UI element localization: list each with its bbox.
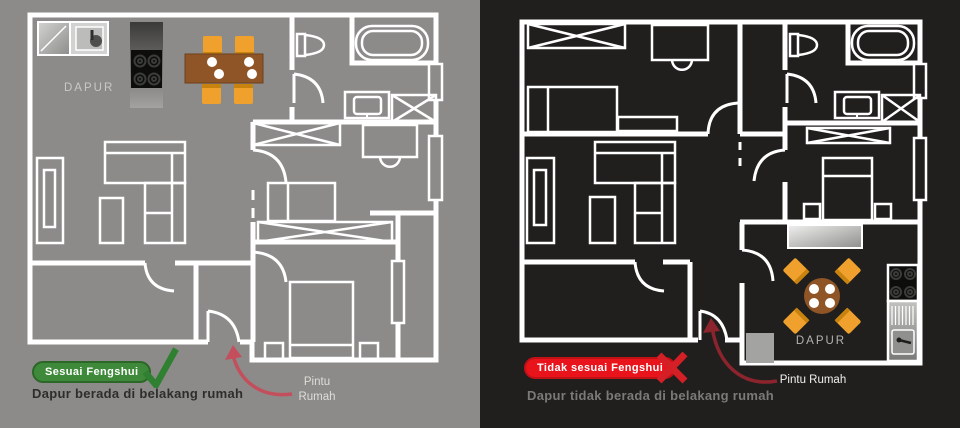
dining-chair bbox=[783, 258, 810, 285]
bathroom-door-arc bbox=[787, 74, 816, 103]
caption-text: Dapur tidak berada di belakang rumah bbox=[527, 388, 774, 403]
desk-with-chair bbox=[363, 125, 417, 167]
outer-walls bbox=[522, 22, 920, 363]
wardrobe-x-icon bbox=[528, 24, 625, 48]
dining-chair bbox=[783, 308, 810, 335]
sofa bbox=[595, 142, 675, 243]
nightstand bbox=[875, 204, 891, 219]
bedroom-top-door-arc bbox=[708, 103, 738, 134]
bathroom bbox=[297, 26, 436, 122]
status-badge-tidak-sesuai: Tidak sesuai Fengshui bbox=[524, 357, 676, 379]
desk-with-chair bbox=[652, 25, 708, 70]
tv-cabinet bbox=[37, 158, 63, 243]
nightstand bbox=[360, 343, 378, 360]
entrance-door-arc bbox=[208, 311, 239, 342]
nightstand bbox=[265, 343, 283, 360]
bathroom-sink bbox=[345, 92, 389, 119]
wardrobe-x-icon bbox=[807, 128, 890, 143]
bathtub-icon bbox=[356, 26, 428, 60]
bed bbox=[290, 282, 353, 358]
room-label-dapur: DAPUR bbox=[796, 335, 846, 347]
kitchen-door-arc bbox=[742, 250, 773, 281]
caption-text: Dapur berada di belakang rumah bbox=[32, 386, 243, 401]
status-badge-label: Sesuai Fengshui bbox=[45, 366, 138, 378]
bench bbox=[618, 117, 677, 131]
dining-set bbox=[185, 36, 263, 104]
status-badge-label: Tidak sesuai Fengshui bbox=[537, 362, 663, 374]
bedroom-bottom bbox=[265, 282, 378, 360]
bedroom-mid-door-arc bbox=[754, 150, 785, 181]
dining-set bbox=[783, 258, 862, 335]
coffee-table bbox=[590, 197, 615, 243]
kitchen-sink-counter bbox=[38, 22, 108, 55]
garage-door-arc bbox=[635, 262, 664, 291]
window-icon bbox=[914, 64, 926, 98]
bathroom bbox=[790, 26, 920, 122]
kitchen-counter bbox=[788, 225, 862, 248]
stove-icon bbox=[888, 265, 918, 301]
check-icon bbox=[138, 344, 182, 388]
living-room bbox=[37, 142, 185, 243]
wardrobe-x-icon bbox=[258, 222, 392, 242]
door-label-line2: Rumah bbox=[298, 391, 335, 403]
bed bbox=[823, 158, 872, 220]
bedroom-middle bbox=[804, 128, 891, 220]
nightstand bbox=[804, 204, 820, 219]
dining-chair bbox=[835, 308, 862, 335]
door-label: Pintu Rumah bbox=[780, 374, 846, 386]
toilet-icon bbox=[297, 34, 324, 56]
fengshui-infographic: DAPUR bbox=[0, 0, 960, 428]
window-icon bbox=[429, 136, 442, 200]
bedroom-middle bbox=[253, 123, 417, 242]
stove-counter bbox=[130, 22, 163, 108]
toilet-icon bbox=[790, 34, 817, 56]
cabinet-x-icon bbox=[392, 95, 436, 122]
status-badge-sesuai: Sesuai Fengshui bbox=[32, 361, 151, 383]
bed bbox=[528, 87, 617, 132]
window-icon bbox=[914, 138, 926, 200]
bedroom1-door-arc bbox=[253, 150, 286, 182]
entrance-arrowhead-icon bbox=[225, 345, 242, 360]
bed bbox=[268, 183, 335, 221]
x-icon bbox=[655, 350, 689, 384]
garage-door-arc bbox=[145, 263, 174, 291]
coffee-table bbox=[100, 198, 123, 243]
bedroom2-door-arc bbox=[253, 252, 286, 282]
bedroom-top bbox=[528, 24, 708, 132]
entry-mat bbox=[746, 333, 774, 363]
sofa bbox=[105, 142, 185, 243]
dining-chair bbox=[835, 258, 862, 285]
window-icon bbox=[392, 261, 404, 323]
kitchen-sink-unit bbox=[888, 301, 918, 361]
panel-fengshui-correct: DAPUR bbox=[0, 0, 480, 428]
cabinet-x-icon bbox=[882, 95, 920, 122]
panel-fengshui-incorrect: DAPUR Pintu Rumah Tidak sesuai Fengshui … bbox=[480, 0, 960, 428]
tv-cabinet bbox=[527, 158, 554, 243]
living-room bbox=[527, 142, 675, 243]
room-label-dapur: DAPUR bbox=[64, 82, 114, 94]
door-label-line1: Pintu bbox=[304, 376, 330, 388]
interior-walls bbox=[522, 22, 920, 340]
wardrobe-x-icon bbox=[253, 123, 340, 145]
dining-table bbox=[804, 278, 840, 314]
bathroom-sink bbox=[835, 92, 879, 119]
bathtub-icon bbox=[852, 26, 914, 60]
bathroom-door-arc bbox=[294, 74, 323, 103]
